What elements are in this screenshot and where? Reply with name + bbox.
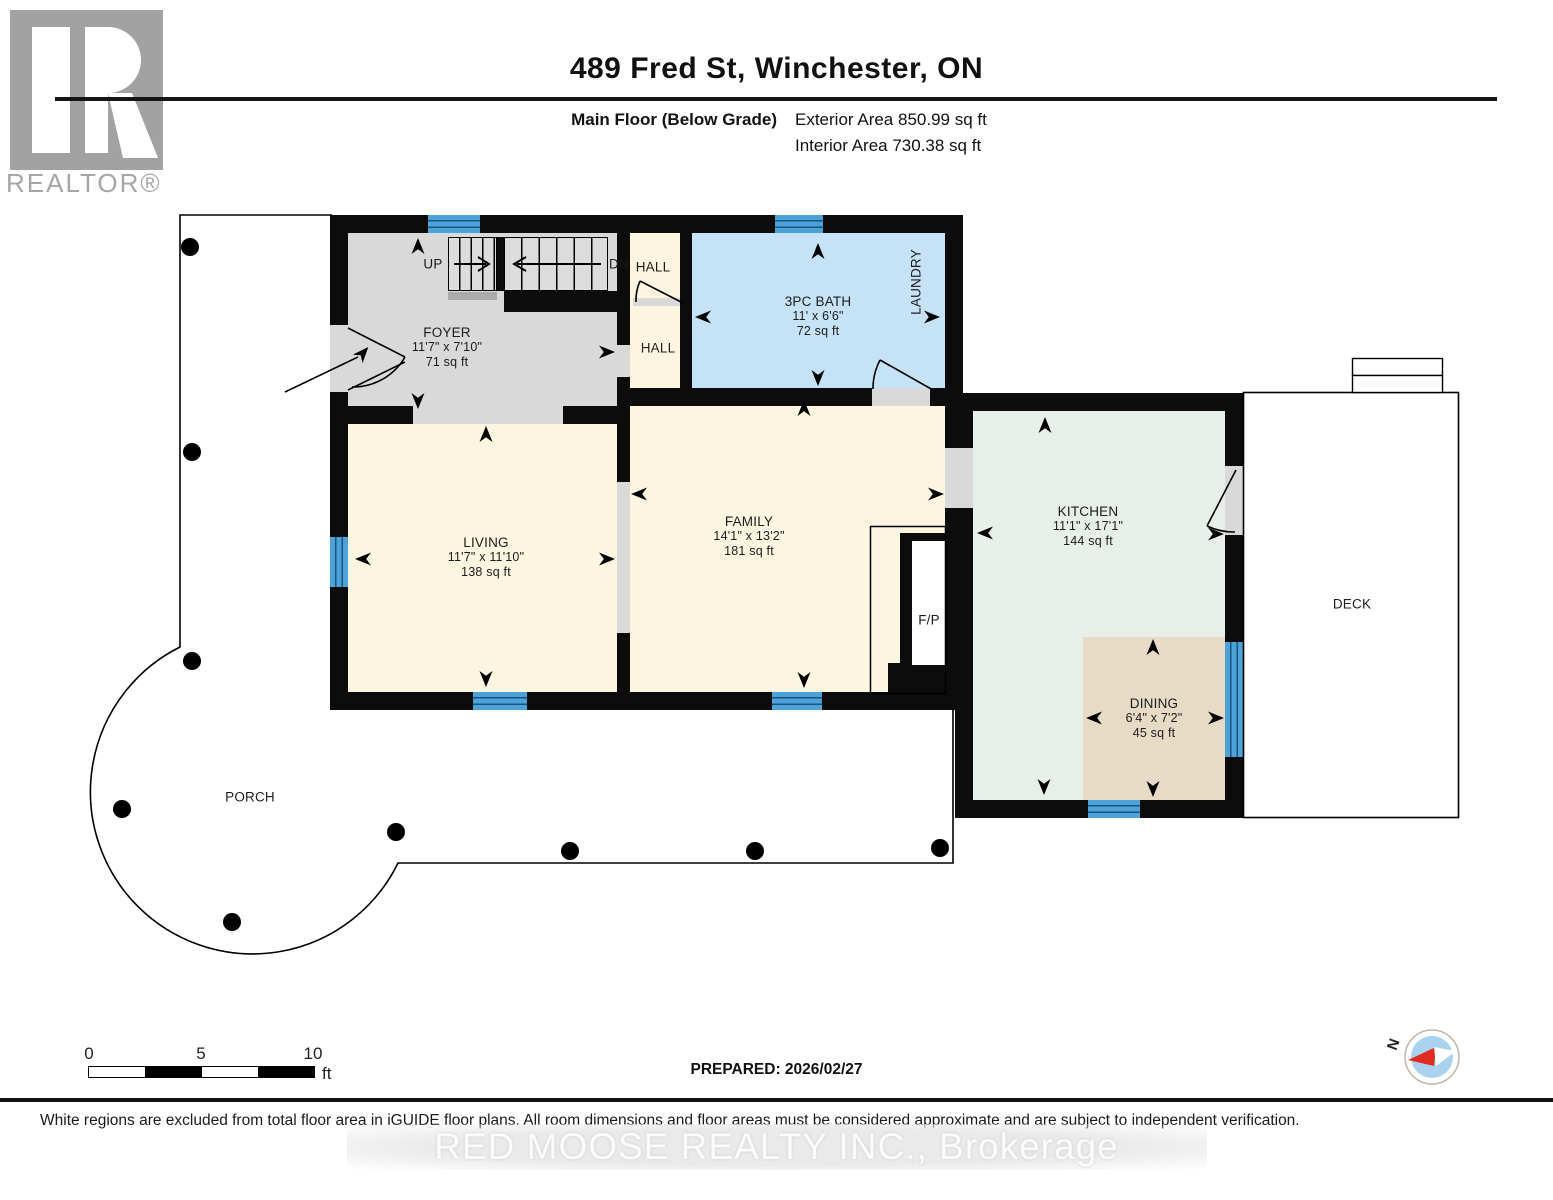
brokerage-watermark: RED MOOSE REALTY INC., Brokerage bbox=[347, 1124, 1207, 1170]
hall-lower-label: HALL bbox=[641, 341, 676, 356]
stairs-up-label: UP bbox=[423, 257, 442, 272]
fireplace-label: F/P bbox=[918, 613, 940, 628]
door-swings bbox=[285, 281, 1236, 532]
living-label: LIVING11'7" x 11'10"138 sq ft bbox=[448, 535, 524, 580]
dining-label: DINING6'4" x 7'2"45 sq ft bbox=[1126, 696, 1183, 741]
fireplace-outline bbox=[871, 527, 946, 694]
prepared-date: PREPARED: 2026/02/27 bbox=[0, 1061, 1553, 1079]
bath-door-swing bbox=[873, 360, 933, 390]
stair-arrows bbox=[454, 257, 601, 271]
stairs-up-arrow bbox=[454, 257, 489, 271]
entry-door-swing bbox=[348, 328, 405, 390]
deck-door-swing bbox=[1207, 470, 1236, 532]
laundry-label: LAUNDRY bbox=[909, 249, 924, 315]
plan-vector-overlay: N bbox=[0, 0, 1553, 1200]
bath-label: 3PC BATH11' x 6'6"72 sq ft bbox=[785, 294, 852, 339]
hall-upper-label: HALL bbox=[636, 260, 671, 275]
compass-north-label: N bbox=[1384, 1036, 1404, 1052]
deck-step-upper bbox=[1353, 359, 1443, 376]
stairs-down-arrow bbox=[514, 257, 601, 271]
floorplan-page: REALTOR® 489 Fred St, Winchester, ON Mai… bbox=[0, 0, 1553, 1200]
footer-divider bbox=[0, 1098, 1553, 1102]
kitchen-label: KITCHEN11'1" x 17'1"144 sq ft bbox=[1053, 504, 1123, 549]
foyer-label: FOYER11'7" x 7'10"71 sq ft bbox=[412, 325, 482, 370]
deck-step-lower bbox=[1353, 376, 1443, 393]
hall-door-swing bbox=[636, 281, 683, 303]
family-label: FAMILY14'1" x 13'2"181 sq ft bbox=[713, 514, 784, 559]
porch-posts bbox=[113, 238, 949, 931]
entry-camera-line bbox=[285, 357, 358, 392]
stairs-down-label: DN bbox=[609, 257, 629, 272]
deck-label: DECK bbox=[1333, 597, 1371, 612]
porch-label: PORCH bbox=[225, 790, 275, 805]
